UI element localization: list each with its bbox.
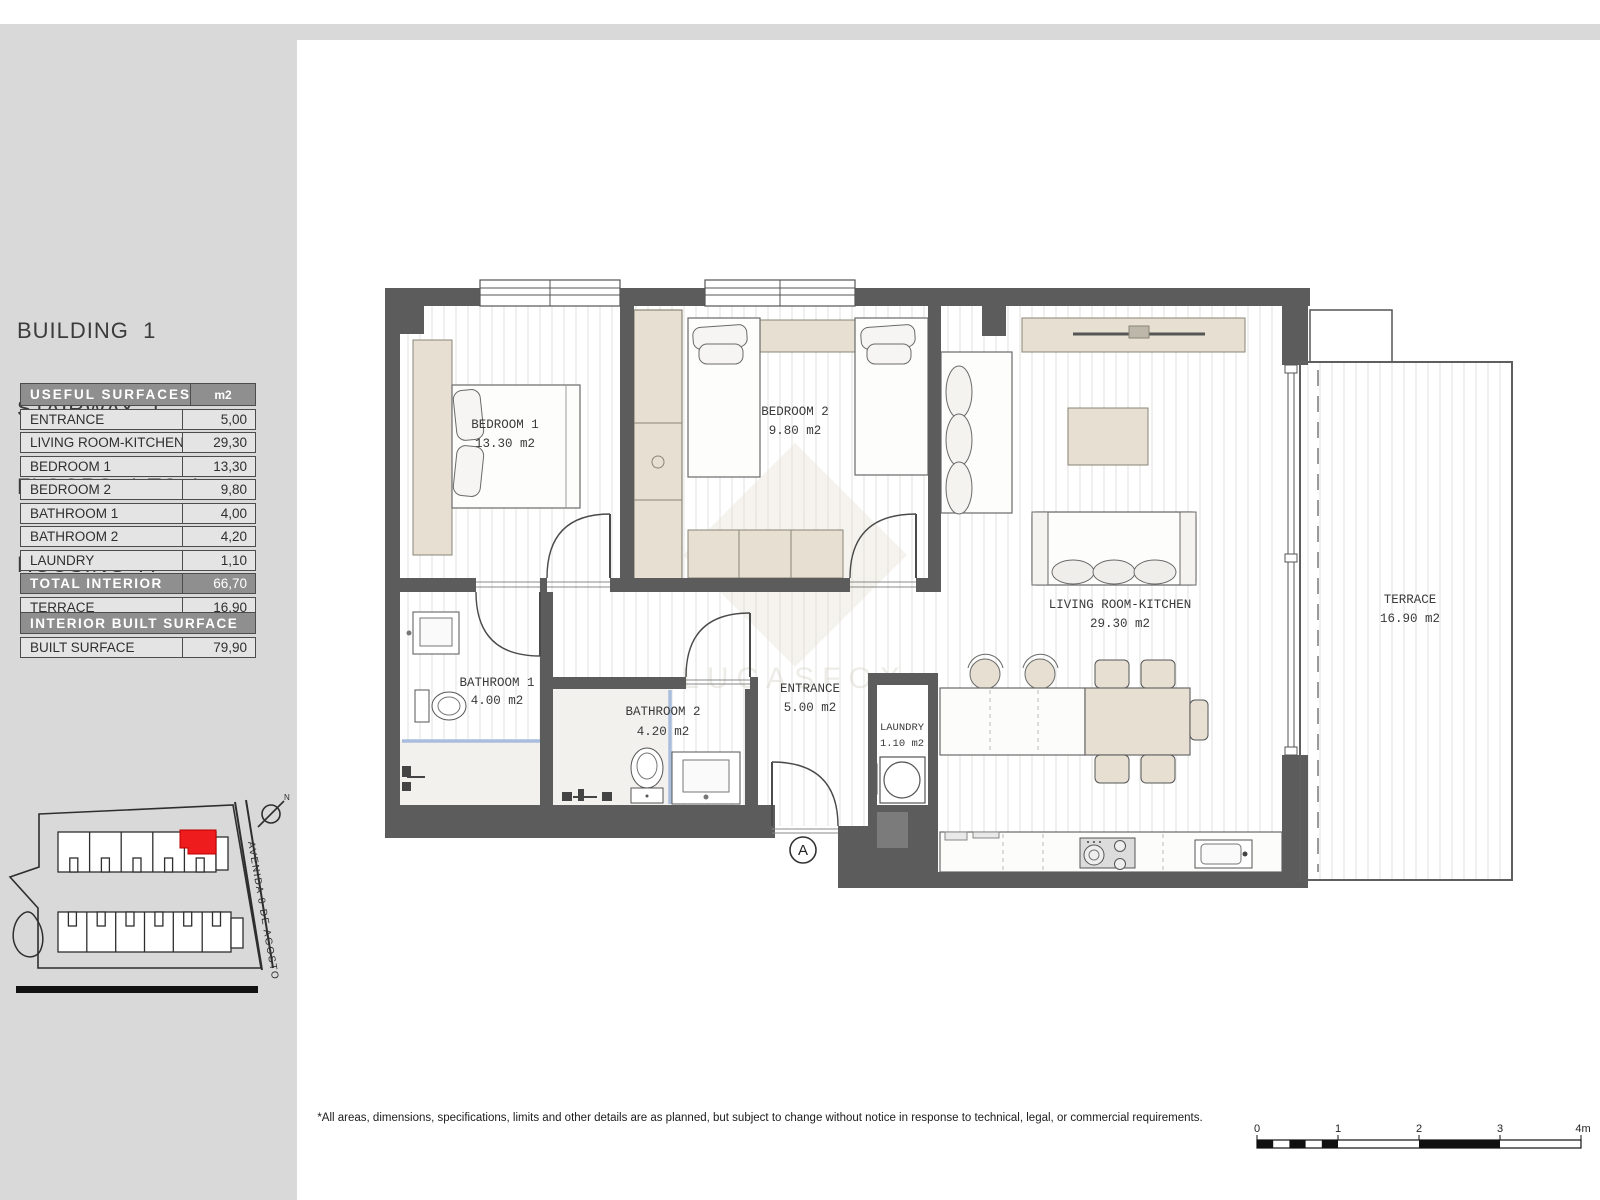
chair (1095, 660, 1129, 688)
svg-text:9.80 m2: 9.80 m2 (769, 424, 822, 438)
title-building: BUILDING 1 (17, 318, 200, 344)
svg-text:16.90 m2: 16.90 m2 (1380, 612, 1440, 626)
room-label-terrace: TERRACE (1384, 593, 1437, 607)
north-arrow-icon: N (258, 793, 290, 827)
shower-area-1 (400, 740, 540, 805)
svg-text:1: 1 (1335, 1123, 1341, 1135)
street-bar (16, 986, 258, 993)
shower-fixture (402, 766, 411, 777)
room-label-bathroom2: BATHROOM 2 (625, 705, 700, 719)
table-row: ENTRANCE 5,00 (20, 409, 256, 430)
chair (1141, 660, 1175, 688)
svg-text:N: N (284, 793, 290, 802)
plan-sheet: BUILDING 1 STAIRWAY 1 FLOORS 1 TO 4 HOUS… (0, 0, 1600, 1200)
table-row: LAUNDRY 1,10 (20, 550, 256, 571)
table-header-unit: m2 (190, 384, 255, 405)
building-row-2 (58, 912, 243, 952)
chair (1141, 755, 1175, 783)
floor-plan: LF LUCASFOX (383, 276, 1523, 892)
svg-text:4.00 m2: 4.00 m2 (471, 694, 524, 708)
table-row: BEDROOM 1 13,30 (20, 456, 256, 477)
built-row: BUILT SURFACE 79,90 (20, 637, 256, 658)
toilet-symbol (631, 748, 663, 788)
svg-text:4m: 4m (1575, 1123, 1590, 1135)
neighbour-structure (1310, 310, 1392, 362)
coffee-table (1068, 408, 1148, 465)
dining-table (1085, 688, 1190, 755)
room-label-bedroom2: BEDROOM 2 (761, 405, 829, 419)
washing-machine-symbol (872, 757, 925, 803)
disclaimer-text: *All areas, dimensions, specifications, … (310, 1112, 1210, 1124)
room-label-bathroom1: BATHROOM 1 (459, 676, 534, 690)
table-header-row: USEFUL SURFACES m2 (20, 383, 256, 406)
wardrobe (634, 310, 682, 588)
svg-text:2: 2 (1416, 1123, 1422, 1135)
toilet-symbol (415, 690, 429, 722)
room-label-entrance: ENTRANCE (780, 682, 840, 696)
sink-symbol (1195, 840, 1252, 868)
table-row: LIVING ROOM-KITCHEN 29,30 (20, 432, 256, 453)
svg-text:3: 3 (1497, 1123, 1503, 1135)
room-label-bedroom1: BEDROOM 1 (471, 418, 539, 432)
housing-marker: A (790, 837, 816, 863)
room-label-laundry: LAUNDRY (880, 722, 925, 734)
useful-surfaces-table: USEFUL SURFACES m2 ENTRANCE 5,00 LIVING … (20, 383, 256, 620)
kitchen-peninsula (940, 688, 1085, 755)
site-plan: N AVENIDA 8 DE AGOSTO (8, 780, 292, 1020)
table-row: BEDROOM 2 9,80 (20, 479, 256, 500)
sliding-door (1285, 365, 1297, 755)
svg-text:1.10 m2: 1.10 m2 (880, 738, 924, 750)
table-row: BATHROOM 1 4,00 (20, 503, 256, 524)
counter-item (945, 832, 967, 840)
scale-bar: 0 1 2 3 4m (1245, 1118, 1597, 1154)
stool (970, 659, 1000, 689)
room-label-living: LIVING ROOM-KITCHEN (1049, 598, 1192, 612)
table-header-label: USEFUL SURFACES (21, 387, 190, 402)
svg-text:29.30 m2: 29.30 m2 (1090, 617, 1150, 631)
stool (1025, 659, 1055, 689)
built-header-row: INTERIOR BUILT SURFACE (20, 612, 256, 634)
table-row-total: TOTAL INTERIOR 66,70 (20, 573, 256, 594)
headboard-panel (413, 340, 452, 555)
hob-symbol (1080, 838, 1135, 870)
chair (1190, 700, 1208, 740)
shaft-block (877, 812, 908, 848)
counter-item (973, 832, 999, 838)
low-wardrobe (688, 530, 843, 578)
chair (1095, 755, 1129, 783)
svg-text:13.30 m2: 13.30 m2 (475, 437, 535, 451)
svg-text:A: A (798, 842, 808, 859)
svg-text:0: 0 (1254, 1123, 1260, 1135)
table-row: BATHROOM 2 4,20 (20, 526, 256, 547)
nightstand (760, 320, 855, 352)
svg-text:5.00 m2: 5.00 m2 (784, 701, 837, 715)
sidebar: BUILDING 1 STAIRWAY 1 FLOORS 1 TO 4 HOUS… (0, 26, 297, 1200)
built-surface-table: INTERIOR BUILT SURFACE BUILT SURFACE 79,… (20, 612, 256, 660)
svg-text:4.20 m2: 4.20 m2 (637, 725, 690, 739)
street-label: AVENIDA 8 DE AGOSTO (245, 841, 280, 982)
